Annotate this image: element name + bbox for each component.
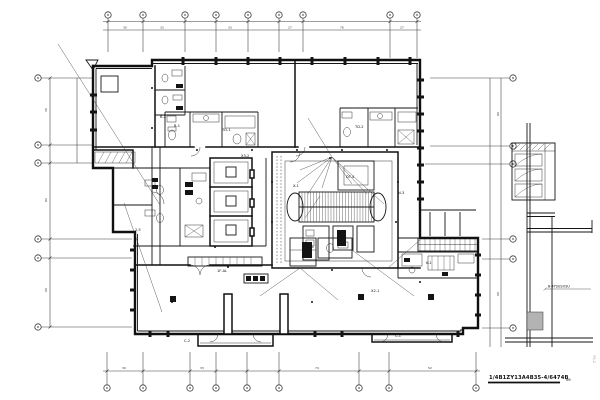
entrance-vestibule-left bbox=[198, 334, 273, 346]
grid-strip-top: 30 33 33 27 76 27 bbox=[103, 12, 421, 58]
core-lower-rooms bbox=[303, 226, 374, 277]
floor-plan-svg: 30 33 33 27 76 27 36 84 60 bbox=[0, 0, 600, 400]
room-label: X3-2 bbox=[241, 154, 249, 158]
bathroom-fixtures-unit1 bbox=[167, 114, 255, 145]
top-guest-rooms bbox=[93, 60, 420, 265]
central-stair-hall bbox=[272, 118, 398, 277]
grid-strip-left: 36 84 60 bbox=[35, 75, 132, 330]
grid-bubbles-top bbox=[105, 12, 420, 18]
reception-counter bbox=[188, 257, 268, 283]
dim-text: 30 bbox=[122, 366, 126, 370]
dim-text: 36 bbox=[44, 108, 48, 112]
east-annex-structure: B-4YSUSOSU bbox=[505, 123, 593, 347]
grand-stair bbox=[287, 192, 386, 222]
room-label: C-1 bbox=[395, 334, 401, 338]
dim-text: 69 bbox=[496, 292, 500, 296]
grid-bubbles-bottom bbox=[104, 385, 479, 391]
dim-text: 52 bbox=[428, 366, 432, 370]
room-label: TD-1 bbox=[221, 128, 231, 132]
room-label: 1F-AL bbox=[217, 269, 227, 273]
grid-bubbles-right bbox=[510, 75, 516, 331]
machine-room bbox=[338, 161, 374, 190]
dim-text: 84 bbox=[44, 198, 48, 202]
left-corridor bbox=[113, 147, 164, 265]
dim-text: 33 bbox=[228, 26, 232, 30]
grid-bubbles-left bbox=[35, 75, 41, 330]
side-vertical-note: YS-2 bbox=[592, 355, 596, 363]
top-left-room bbox=[93, 76, 135, 168]
dim-text: 76 bbox=[340, 26, 344, 30]
bathroom-fixtures-unit2 bbox=[342, 112, 416, 144]
dim-text: 68 bbox=[496, 112, 500, 116]
room-label: DT-4 bbox=[346, 175, 355, 179]
annex-stair bbox=[512, 143, 555, 200]
service-rooms-mid bbox=[290, 238, 352, 266]
room-label: N-3 bbox=[398, 191, 404, 195]
annex-note: B-4YSUSOSU bbox=[544, 285, 592, 291]
bathrooms-left-stack bbox=[155, 66, 185, 115]
dim-text: 60 bbox=[44, 288, 48, 292]
room-label: B-2 bbox=[160, 115, 166, 119]
dim-text: 27 bbox=[400, 26, 404, 30]
leader-lines bbox=[58, 44, 162, 312]
room-label: 2.5 bbox=[135, 228, 141, 232]
dim-text: 30 bbox=[123, 26, 127, 30]
room-label: C-2 bbox=[184, 339, 190, 343]
room-label: K-1 bbox=[426, 261, 432, 265]
grid-strip-bottom: 30 33 74 52 bbox=[103, 352, 480, 391]
dim-text: 33 bbox=[160, 26, 164, 30]
room-label: TD-2 bbox=[354, 125, 364, 129]
drawing-title: 1/4B1ZY13A4B35-4/6474B bbox=[489, 375, 569, 381]
room-label: B-1 bbox=[174, 124, 180, 128]
drawing-title-suffix: N9 bbox=[566, 378, 571, 382]
annex-note-text: B-4YSUSOSU bbox=[548, 285, 570, 289]
room-label: AL-1 bbox=[306, 245, 314, 249]
dim-text: 74 bbox=[315, 366, 319, 370]
title-block: 1/4B1ZY13A4B35-4/6474B N9 YS-2 bbox=[488, 355, 596, 383]
grid-strip-right: 68 69 bbox=[425, 75, 516, 347]
room-label: X2-1 bbox=[371, 289, 379, 293]
elevator-bank bbox=[210, 158, 266, 246]
room-label: X-1 bbox=[293, 184, 299, 188]
service-rooms-right bbox=[380, 210, 478, 342]
dim-text: 27 bbox=[288, 26, 292, 30]
dim-text: 33 bbox=[200, 366, 204, 370]
lobby bbox=[135, 250, 434, 334]
